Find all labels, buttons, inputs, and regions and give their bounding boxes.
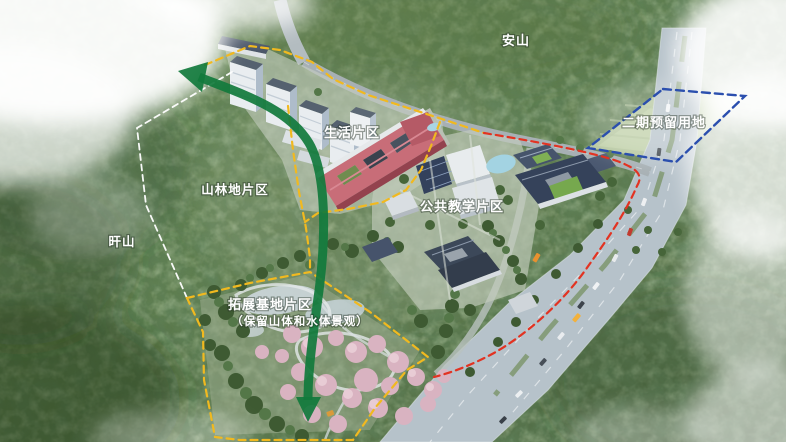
label-zone-expansion-base: 拓展基地片区 xyxy=(228,297,312,312)
label-zone-mountain-forest: 山林地片区 xyxy=(201,182,269,197)
label-mountain-anshan: 安山 xyxy=(502,33,530,48)
masterplan-canvas: 安山 旰山 生活片区 山林地片区 公共教学片区 拓展基地片区 （保留山体和水体景… xyxy=(0,0,786,442)
label-zone-public-teaching: 公共教学片区 xyxy=(420,199,504,214)
label-zone-phase2: 二期预留用地 xyxy=(622,115,706,130)
label-mountain-west: 旰山 xyxy=(108,234,135,249)
label-zone-expansion-note: （保留山体和水体景观） xyxy=(231,314,369,328)
aerial-masterplan-rendering: 安山 旰山 生活片区 山林地片区 公共教学片区 拓展基地片区 （保留山体和水体景… xyxy=(0,0,786,442)
label-zone-living: 生活片区 xyxy=(324,125,380,140)
